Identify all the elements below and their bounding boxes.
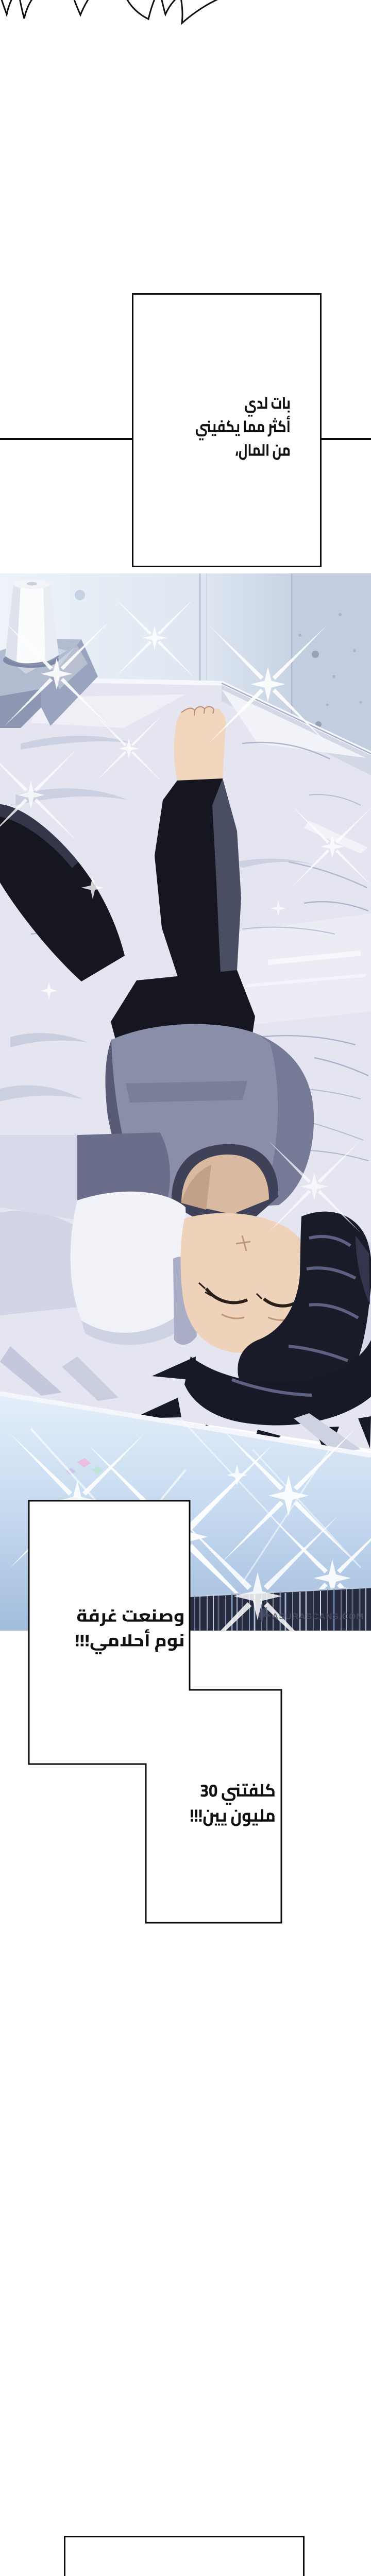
svg-text:ASURASCANS.COM: ASURASCANS.COM (272, 1612, 364, 1621)
